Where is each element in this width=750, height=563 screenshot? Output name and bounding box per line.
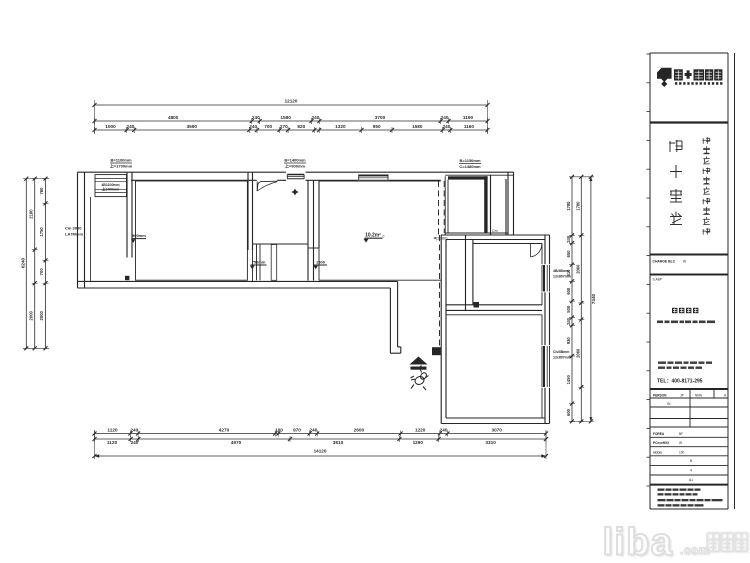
svg-text:240: 240 xyxy=(311,115,319,120)
svg-text:1500: 1500 xyxy=(316,259,326,264)
svg-text:700: 700 xyxy=(264,124,272,129)
svg-text:760: 760 xyxy=(39,187,44,195)
svg-text:A1: A1 xyxy=(689,478,693,482)
svg-text:-0: -0 xyxy=(382,235,385,239)
svg-text:600: 600 xyxy=(566,287,571,295)
svg-text:7440: 7440 xyxy=(591,293,596,304)
svg-text:1290: 1290 xyxy=(413,440,424,445)
svg-text:BF: BF xyxy=(679,432,683,436)
svg-text:3700: 3700 xyxy=(375,115,386,120)
svg-text:2180: 2180 xyxy=(28,209,33,219)
svg-text:240: 240 xyxy=(249,124,257,129)
svg-text:.com: .com xyxy=(680,543,710,557)
svg-text:1220: 1220 xyxy=(415,428,426,433)
svg-text:Cm 3000: Cm 3000 xyxy=(65,226,82,231)
svg-text:1580: 1580 xyxy=(412,124,423,129)
svg-text:2000: 2000 xyxy=(28,310,33,320)
svg-text:1320: 1320 xyxy=(335,124,346,129)
svg-text:1450: 1450 xyxy=(566,375,571,385)
svg-text:PCxxxHXX: PCxxxHXX xyxy=(653,441,670,445)
svg-text:950: 950 xyxy=(373,124,381,129)
svg-text:270: 270 xyxy=(280,124,288,129)
svg-text:6240: 6240 xyxy=(20,257,25,268)
svg-text:PERSON: PERSON xyxy=(653,393,667,397)
svg-text:3070: 3070 xyxy=(491,428,502,433)
svg-text:240: 240 xyxy=(126,124,134,129)
svg-text:3590: 3590 xyxy=(187,124,198,129)
svg-text:240: 240 xyxy=(131,440,139,445)
svg-text:240: 240 xyxy=(566,317,571,325)
svg-text:B=1100mm: B=1100mm xyxy=(110,158,131,163)
svg-text:FOREA: FOREA xyxy=(653,432,665,436)
svg-text:12x807mm: 12x807mm xyxy=(553,275,571,279)
svg-text:12x807mm: 12x807mm xyxy=(553,356,571,360)
svg-text:B=1400mm: B=1400mm xyxy=(284,158,306,163)
svg-text:liba: liba xyxy=(603,522,674,563)
svg-text:4: 4 xyxy=(690,469,692,473)
svg-text:14120: 14120 xyxy=(314,449,327,454)
svg-text:10.2m²: 10.2m² xyxy=(365,232,381,238)
svg-text:600: 600 xyxy=(566,408,571,416)
svg-text:700: 700 xyxy=(39,268,44,276)
svg-text:930: 930 xyxy=(566,337,571,345)
svg-text:B=1150mm: B=1150mm xyxy=(459,158,480,163)
svg-text:xxxxx: xxxxx xyxy=(653,450,662,454)
svg-text:240: 240 xyxy=(309,428,317,433)
svg-text:4800: 4800 xyxy=(168,115,179,120)
svg-text:上=1700mm: 上=1700mm xyxy=(110,163,133,169)
svg-text:上=900mm: 上=900mm xyxy=(285,163,306,169)
svg-text:C=1480mm: C=1480mm xyxy=(459,164,481,169)
svg-text:LA7Mmm: LA7Mmm xyxy=(65,231,83,236)
svg-text:500: 500 xyxy=(566,305,571,313)
svg-text:1120: 1120 xyxy=(107,428,118,433)
svg-text:CHARGE BLC: CHARGE BLC xyxy=(653,260,676,264)
svg-text:240: 240 xyxy=(130,428,138,433)
svg-text:S.ABP: S.ABP xyxy=(653,278,662,282)
svg-text:1000: 1000 xyxy=(105,124,116,129)
svg-text:1580: 1580 xyxy=(280,115,291,120)
svg-text:240: 240 xyxy=(566,235,571,243)
svg-text:1750: 1750 xyxy=(39,227,44,237)
svg-text:240: 240 xyxy=(441,115,449,120)
svg-text:3310: 3310 xyxy=(485,440,496,445)
svg-text:240: 240 xyxy=(443,124,451,129)
svg-text:1120: 1120 xyxy=(107,440,118,445)
svg-text:4B1100mm: 4B1100mm xyxy=(101,183,119,187)
svg-text:TEL：400-8171-295: TEL：400-8171-295 xyxy=(657,379,703,385)
svg-text:2060: 2060 xyxy=(576,348,581,358)
svg-text:750mm: 750mm xyxy=(252,259,266,264)
svg-text:240: 240 xyxy=(252,115,260,120)
svg-text:上1400mm: 上1400mm xyxy=(102,187,120,192)
svg-text:970: 970 xyxy=(293,428,301,433)
svg-text:100: 100 xyxy=(275,428,283,433)
svg-text:2060: 2060 xyxy=(576,264,581,274)
svg-text:3810: 3810 xyxy=(333,440,344,445)
svg-text:JP: JP xyxy=(680,393,684,397)
svg-text:1160: 1160 xyxy=(464,124,475,129)
svg-text:820: 820 xyxy=(297,124,305,129)
svg-text:4970: 4970 xyxy=(231,440,242,445)
svg-text:650: 650 xyxy=(566,250,571,258)
svg-text:W: W xyxy=(679,441,682,445)
svg-text:100: 100 xyxy=(679,450,685,454)
svg-text:4270: 4270 xyxy=(219,428,230,433)
svg-text:2000: 2000 xyxy=(39,310,44,320)
svg-text:900mm: 900mm xyxy=(132,233,146,238)
svg-text:IN: IN xyxy=(667,402,671,406)
svg-text:1190: 1190 xyxy=(463,115,474,120)
svg-text:12120: 12120 xyxy=(285,99,298,104)
svg-text:Cm: Cm xyxy=(492,229,498,233)
svg-text:2600: 2600 xyxy=(354,428,365,433)
svg-text:1780: 1780 xyxy=(566,201,571,211)
svg-text:Ch/4Bmm: Ch/4Bmm xyxy=(553,350,569,354)
svg-text:4B/4Bmm: 4B/4Bmm xyxy=(553,269,569,273)
svg-text:NNN: NNN xyxy=(695,393,703,397)
svg-text:240: 240 xyxy=(440,428,448,433)
svg-text:1780: 1780 xyxy=(576,201,581,211)
